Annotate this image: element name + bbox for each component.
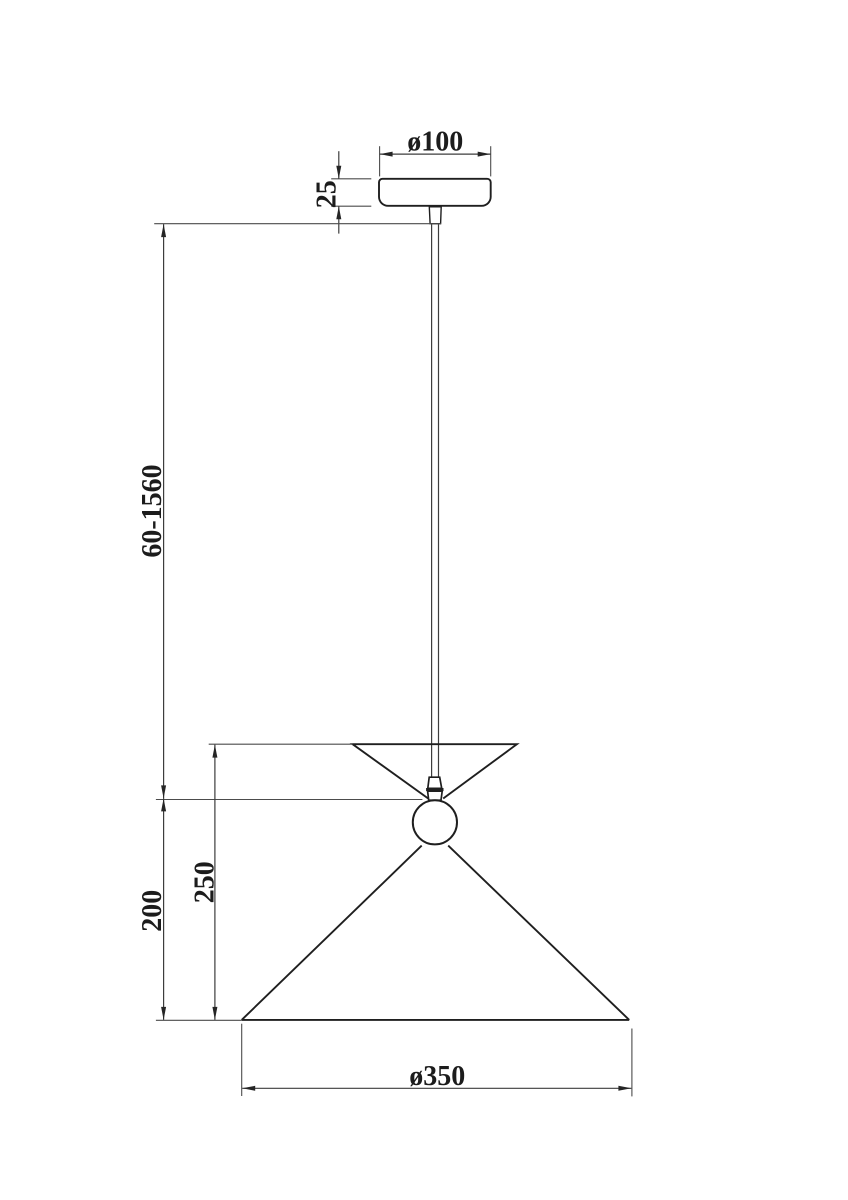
svg-text:250: 250 [189, 861, 220, 903]
svg-text:ø100: ø100 [407, 127, 463, 158]
svg-text:200: 200 [137, 890, 168, 932]
svg-text:60-1560: 60-1560 [137, 464, 168, 557]
svg-text:ø350: ø350 [409, 1061, 465, 1092]
svg-text:25: 25 [312, 180, 343, 208]
